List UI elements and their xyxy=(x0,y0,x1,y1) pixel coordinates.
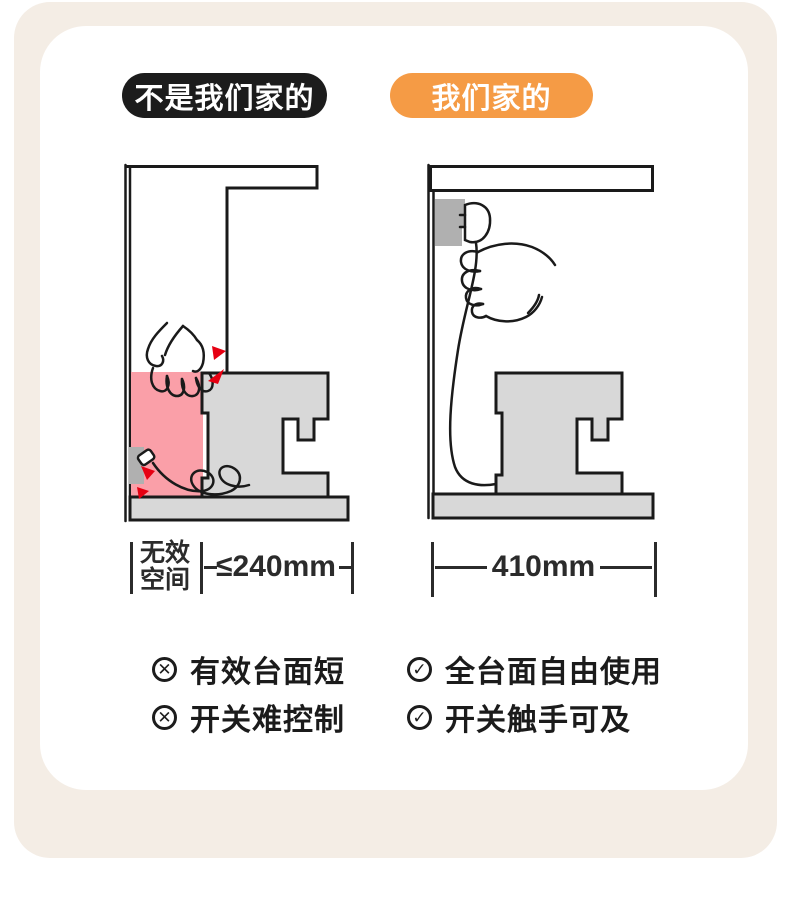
con-item: ✕ 有效台面短 xyxy=(152,652,345,686)
appliance-silhouette xyxy=(496,373,622,494)
measure-tick xyxy=(351,542,354,594)
pro-item: ✓ 全台面自由使用 xyxy=(407,652,662,686)
measure-value-left: ≤240mm xyxy=(200,550,352,584)
power-outlet xyxy=(435,199,465,246)
countertop xyxy=(130,497,348,520)
measure-line xyxy=(339,566,351,569)
measure-line xyxy=(600,566,652,569)
cross-circle-icon: ✕ xyxy=(152,705,177,730)
check-circle-icon: ✓ xyxy=(407,657,432,682)
upper-shelf xyxy=(431,167,653,191)
plug-icon xyxy=(460,203,490,242)
measure-tick xyxy=(654,542,657,597)
pro-label: 全台面自由使用 xyxy=(445,647,662,691)
con-item: ✕ 开关难控制 xyxy=(152,700,345,734)
diagram-cramped-counter xyxy=(115,155,360,530)
measure-tick xyxy=(431,542,434,597)
badge-not-ours: 不是我们家的 xyxy=(122,73,327,118)
infographic-page: 不是我们家的 我们家的 xyxy=(0,0,790,897)
hand-icon xyxy=(461,244,555,322)
check-circle-icon: ✓ xyxy=(407,705,432,730)
measure-line xyxy=(435,566,487,569)
pro-label: 开关触手可及 xyxy=(445,695,631,739)
wall xyxy=(429,165,434,518)
dead-space-label-line2: 空间 xyxy=(131,567,199,594)
background-panel: 不是我们家的 我们家的 xyxy=(14,2,777,858)
dead-space-label: 无效 空间 xyxy=(131,540,199,594)
diagram-open-counter xyxy=(420,155,665,530)
con-label: 开关难控制 xyxy=(190,695,345,739)
countertop xyxy=(433,494,653,518)
cross-circle-icon: ✕ xyxy=(152,657,177,682)
badge-ours: 我们家的 xyxy=(390,73,593,118)
content-card: 不是我们家的 我们家的 xyxy=(40,26,748,790)
con-label: 有效台面短 xyxy=(190,647,345,691)
measure-value-right: 410mm xyxy=(487,550,600,584)
power-cord xyxy=(450,243,496,485)
pro-item: ✓ 开关触手可及 xyxy=(407,700,631,734)
upper-cabinet xyxy=(125,167,317,373)
dead-space-label-line1: 无效 xyxy=(131,540,199,567)
